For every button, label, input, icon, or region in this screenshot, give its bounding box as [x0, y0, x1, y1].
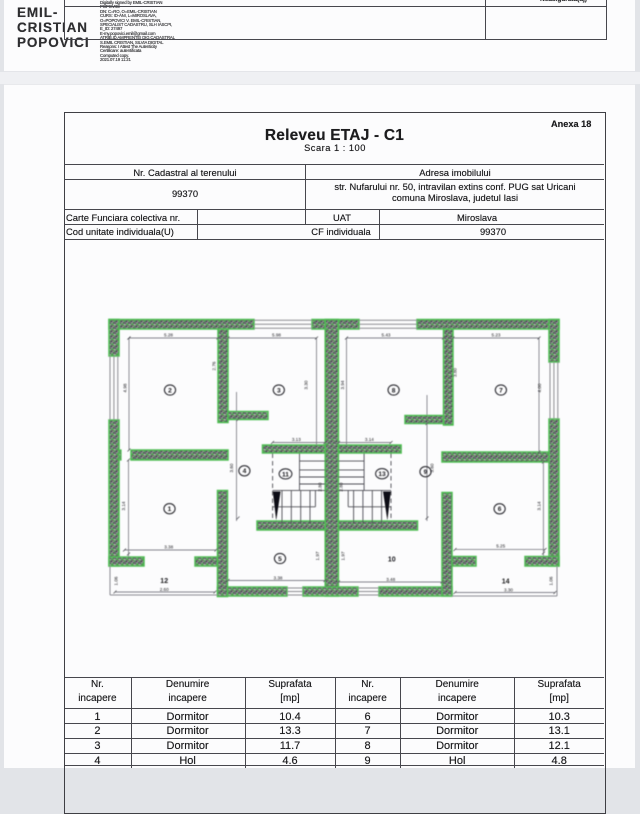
- svg-text:3.80: 3.80: [453, 368, 458, 377]
- svg-text:1: 1: [168, 506, 172, 513]
- svg-text:5.23: 5.23: [492, 333, 501, 338]
- svg-text:3.38: 3.38: [274, 576, 283, 581]
- svg-text:12: 12: [160, 578, 168, 585]
- svg-text:3.14: 3.14: [537, 501, 542, 510]
- svg-text:5.43: 5.43: [382, 333, 391, 338]
- svg-text:14: 14: [502, 579, 510, 586]
- svg-text:1.06: 1.06: [549, 576, 554, 585]
- svg-text:6: 6: [498, 506, 502, 513]
- svg-text:11: 11: [282, 471, 289, 478]
- svg-text:3.30: 3.30: [504, 588, 513, 593]
- svg-text:2.76: 2.76: [212, 361, 217, 370]
- svg-text:3.14: 3.14: [121, 501, 126, 510]
- svg-text:7: 7: [499, 387, 503, 394]
- svg-text:5.98: 5.98: [272, 333, 281, 338]
- svg-text:5.25: 5.25: [496, 544, 505, 549]
- svg-text:10: 10: [388, 556, 396, 563]
- svg-text:4.00: 4.00: [537, 383, 542, 392]
- svg-text:9: 9: [424, 469, 428, 476]
- svg-text:4.98: 4.98: [123, 383, 128, 392]
- svg-text:2.80: 2.80: [318, 482, 323, 491]
- svg-text:8: 8: [392, 387, 396, 394]
- svg-text:5: 5: [278, 556, 282, 563]
- svg-text:3.48: 3.48: [386, 577, 395, 582]
- svg-text:3.30: 3.30: [304, 380, 309, 389]
- svg-text:13: 13: [378, 471, 386, 478]
- svg-text:3.13: 3.13: [292, 437, 301, 442]
- svg-text:3.94: 3.94: [340, 380, 345, 389]
- svg-text:1.06: 1.06: [114, 576, 119, 585]
- svg-text:2.80: 2.80: [339, 482, 344, 491]
- svg-text:2: 2: [168, 387, 172, 394]
- svg-text:3: 3: [277, 387, 281, 394]
- svg-text:3.38: 3.38: [164, 545, 173, 550]
- svg-text:4: 4: [243, 468, 247, 475]
- svg-text:3.60: 3.60: [229, 463, 234, 472]
- svg-text:1.97: 1.97: [341, 551, 346, 560]
- svg-text:1.97: 1.97: [315, 551, 320, 560]
- svg-text:5.28: 5.28: [164, 333, 173, 338]
- svg-text:3.60: 3.60: [430, 463, 435, 472]
- svg-text:2.60: 2.60: [160, 587, 169, 592]
- svg-text:3.14: 3.14: [365, 437, 374, 442]
